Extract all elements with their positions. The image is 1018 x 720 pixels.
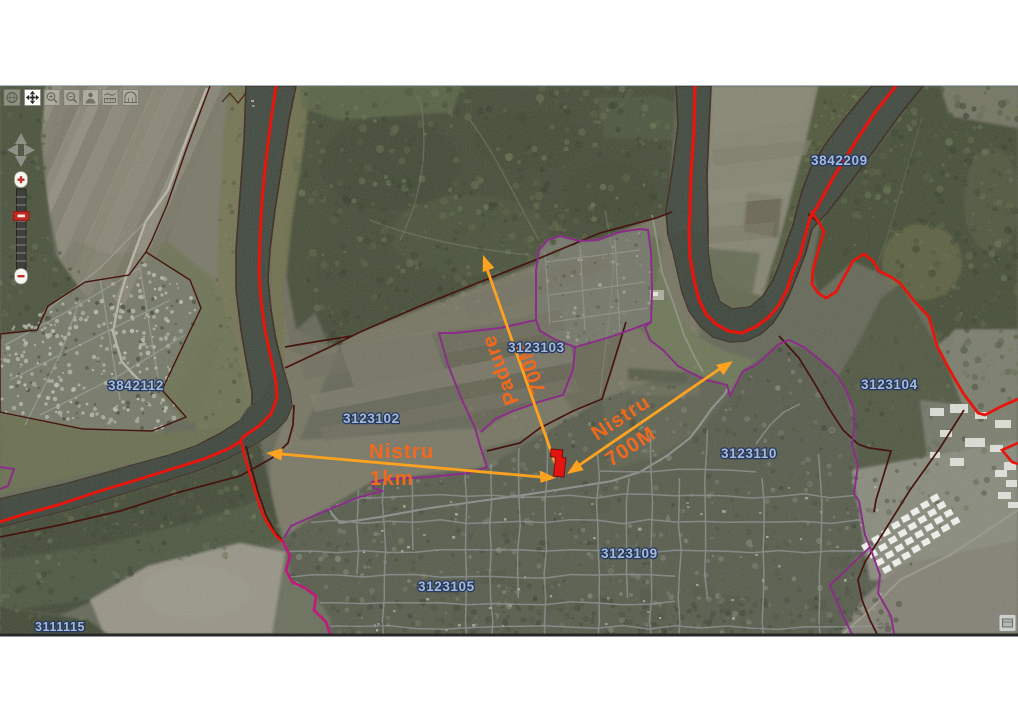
svg-text:3123104: 3123104 [861, 377, 918, 392]
svg-text:3123102: 3123102 [343, 411, 400, 426]
svg-text:3123105: 3123105 [418, 579, 475, 594]
svg-text:3123110: 3123110 [721, 446, 777, 461]
svg-text:1km: 1km [370, 467, 414, 490]
svg-text:3842112: 3842112 [108, 378, 164, 393]
svg-text:3123103: 3123103 [508, 340, 565, 355]
svg-text:3111115: 3111115 [35, 620, 85, 634]
svg-text:Nistru: Nistru [369, 440, 434, 463]
svg-text:3842209: 3842209 [811, 153, 868, 168]
svg-text:3123109: 3123109 [601, 546, 658, 561]
